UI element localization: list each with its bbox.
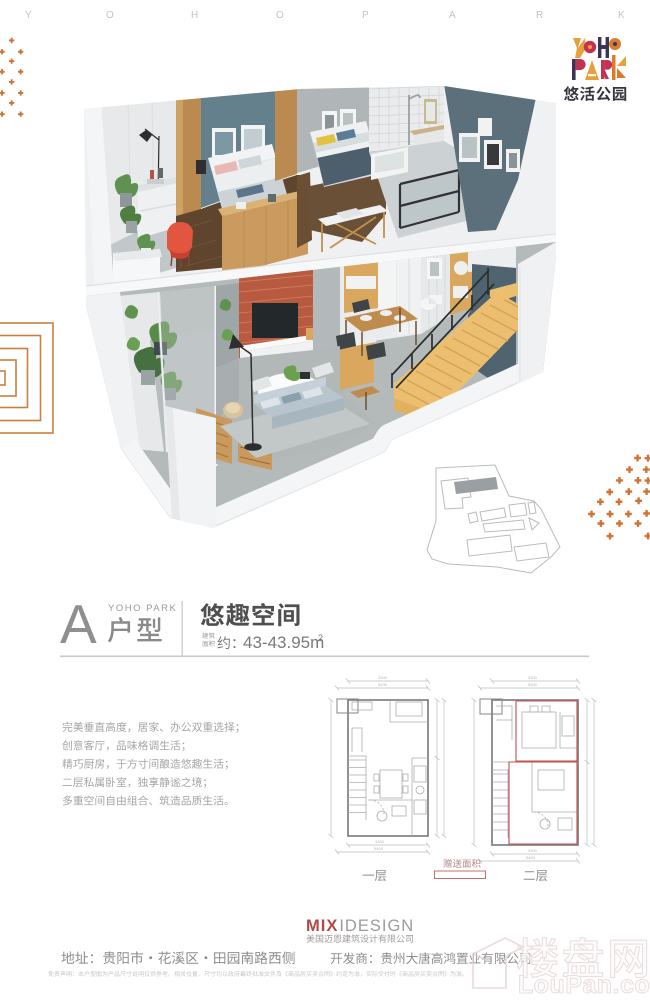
svg-text:H: H (191, 10, 198, 21)
svg-text:R: R (536, 10, 543, 21)
svg-text:LouPan.com: LouPan.com (518, 971, 650, 999)
svg-text:Y: Y (25, 10, 32, 21)
svg-text:A: A (60, 593, 97, 655)
svg-text:O: O (106, 10, 114, 21)
svg-text:3300: 3300 (528, 848, 538, 853)
svg-text:3300: 3300 (375, 839, 385, 844)
svg-text:5400: 5400 (526, 855, 536, 860)
svg-text:5400: 5400 (374, 846, 384, 851)
svg-text:3300: 3300 (528, 675, 538, 680)
svg-text:5400: 5400 (528, 682, 538, 687)
svg-text:MIXIDESIGN: MIXIDESIGN (306, 917, 414, 935)
svg-text:O: O (276, 10, 284, 21)
svg-text:43-43.95m: 43-43.95m (243, 633, 324, 652)
svg-text:2: 2 (318, 633, 323, 643)
svg-text:A: A (449, 10, 456, 21)
svg-text:3300: 3300 (378, 675, 388, 680)
svg-text:5400: 5400 (378, 682, 388, 687)
svg-text:P: P (362, 10, 369, 21)
svg-text:K: K (618, 10, 625, 21)
svg-text:YOHO PARK: YOHO PARK (108, 603, 177, 614)
